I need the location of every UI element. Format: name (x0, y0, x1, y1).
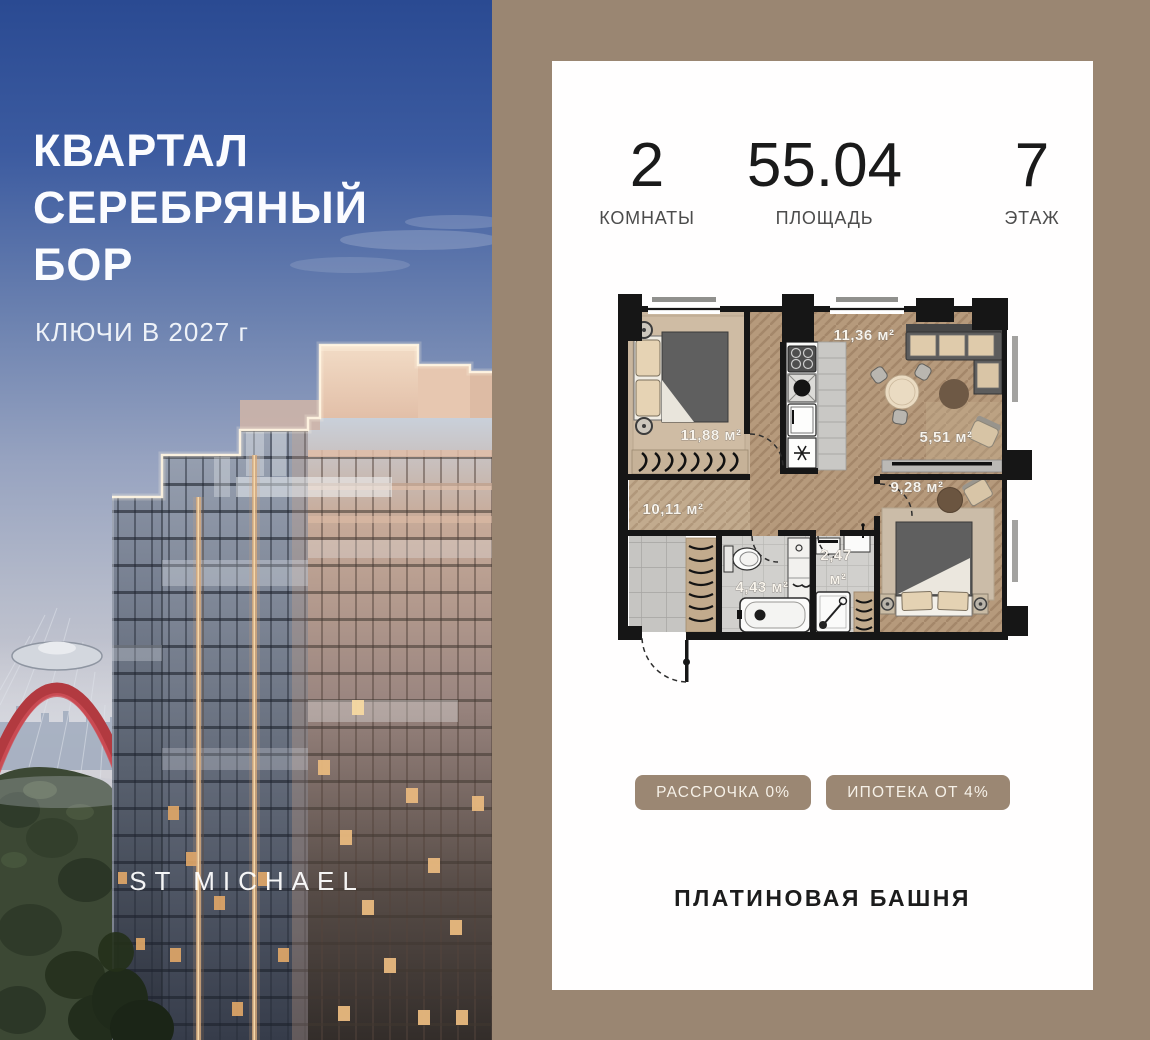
stat-area: 55.04 ПЛОЩАДЬ (732, 135, 917, 229)
kitchen-units (786, 342, 846, 470)
tower-name-title: ПЛАТИНОВАЯ БАШНЯ (552, 885, 1093, 912)
room-label-hallway: 10,11 м² (643, 501, 704, 518)
tv-icon (892, 462, 992, 466)
pillow (902, 591, 933, 610)
room-label-niche: 5,51 м² (920, 429, 973, 446)
listing-flyer: КВАРТАЛ СЕРЕБРЯНЫЙ БОР КЛЮЧИ В 2027 г ST… (0, 0, 1150, 1040)
room-label-bedroom-large: 11,88 м² (681, 427, 742, 444)
pillow (636, 340, 660, 376)
room-label-kitchen-living: 11,36 м² (834, 327, 895, 344)
development-title-line: КВАРТАЛ (33, 122, 368, 179)
development-title-line: СЕРЕБРЯНЫЙ (33, 179, 368, 236)
stat-rooms: 2 КОМНАТЫ (582, 135, 712, 229)
building-photo: КВАРТАЛ СЕРЕБРЯНЫЙ БОР КЛЮЧИ В 2027 г ST… (0, 0, 492, 1040)
bedroom-large-furniture (632, 316, 748, 474)
pillow (938, 591, 969, 610)
mortgage-badge[interactable]: ИПОТЕКА ОТ 4% (826, 775, 1010, 810)
pillow (636, 380, 660, 416)
development-title-line: БОР (33, 236, 368, 293)
development-title: КВАРТАЛ СЕРЕБРЯНЫЙ БОР (33, 122, 368, 293)
room-label-wc-unit: м² (829, 571, 846, 588)
bath-vanity (788, 538, 810, 600)
developer-watermark: ST MICHAEL (77, 866, 417, 897)
entry-door-arc (642, 638, 686, 682)
info-card: 2 КОМНАТЫ 55.04 ПЛОЩАДЬ 7 ЭТАЖ (552, 61, 1093, 990)
round-rug (939, 379, 969, 409)
room-label-bedroom-small: 9,28 м² (891, 479, 944, 496)
sink-icon (794, 380, 811, 397)
tv-console (882, 460, 1002, 472)
stat-floor-value: 7 (977, 135, 1087, 197)
room-label-bathroom: 4,43 м² (736, 579, 789, 596)
stat-rooms-value: 2 (582, 135, 712, 197)
room-label-wc-value: 2,47 (820, 547, 851, 564)
hallway-wardrobe (686, 538, 716, 632)
floor-plan: 11,88 м² 11,36 м² 5,51 м² 9,28 м² 10,11 … (616, 292, 1036, 692)
stats-row: 2 КОМНАТЫ 55.04 ПЛОЩАДЬ 7 ЭТАЖ (552, 135, 1093, 245)
stat-floor: 7 ЭТАЖ (977, 135, 1087, 229)
dining-table-icon (885, 375, 919, 409)
installment-badge[interactable]: РАССРОЧКА 0% (635, 775, 811, 810)
keys-date-subtitle: КЛЮЧИ В 2027 г (35, 317, 249, 348)
stat-floor-label: ЭТАЖ (977, 208, 1087, 229)
entry-door-handle (683, 659, 690, 666)
bridge-deck-dome (38, 642, 76, 655)
stat-rooms-label: КОМНАТЫ (582, 208, 712, 229)
toilet-tank (724, 546, 733, 572)
stat-area-value: 55.04 (732, 135, 917, 197)
stat-area-label: ПЛОЩАДЬ (732, 208, 917, 229)
promo-badges: РАССРОЧКА 0% ИПОТЕКА ОТ 4% (552, 775, 1093, 810)
